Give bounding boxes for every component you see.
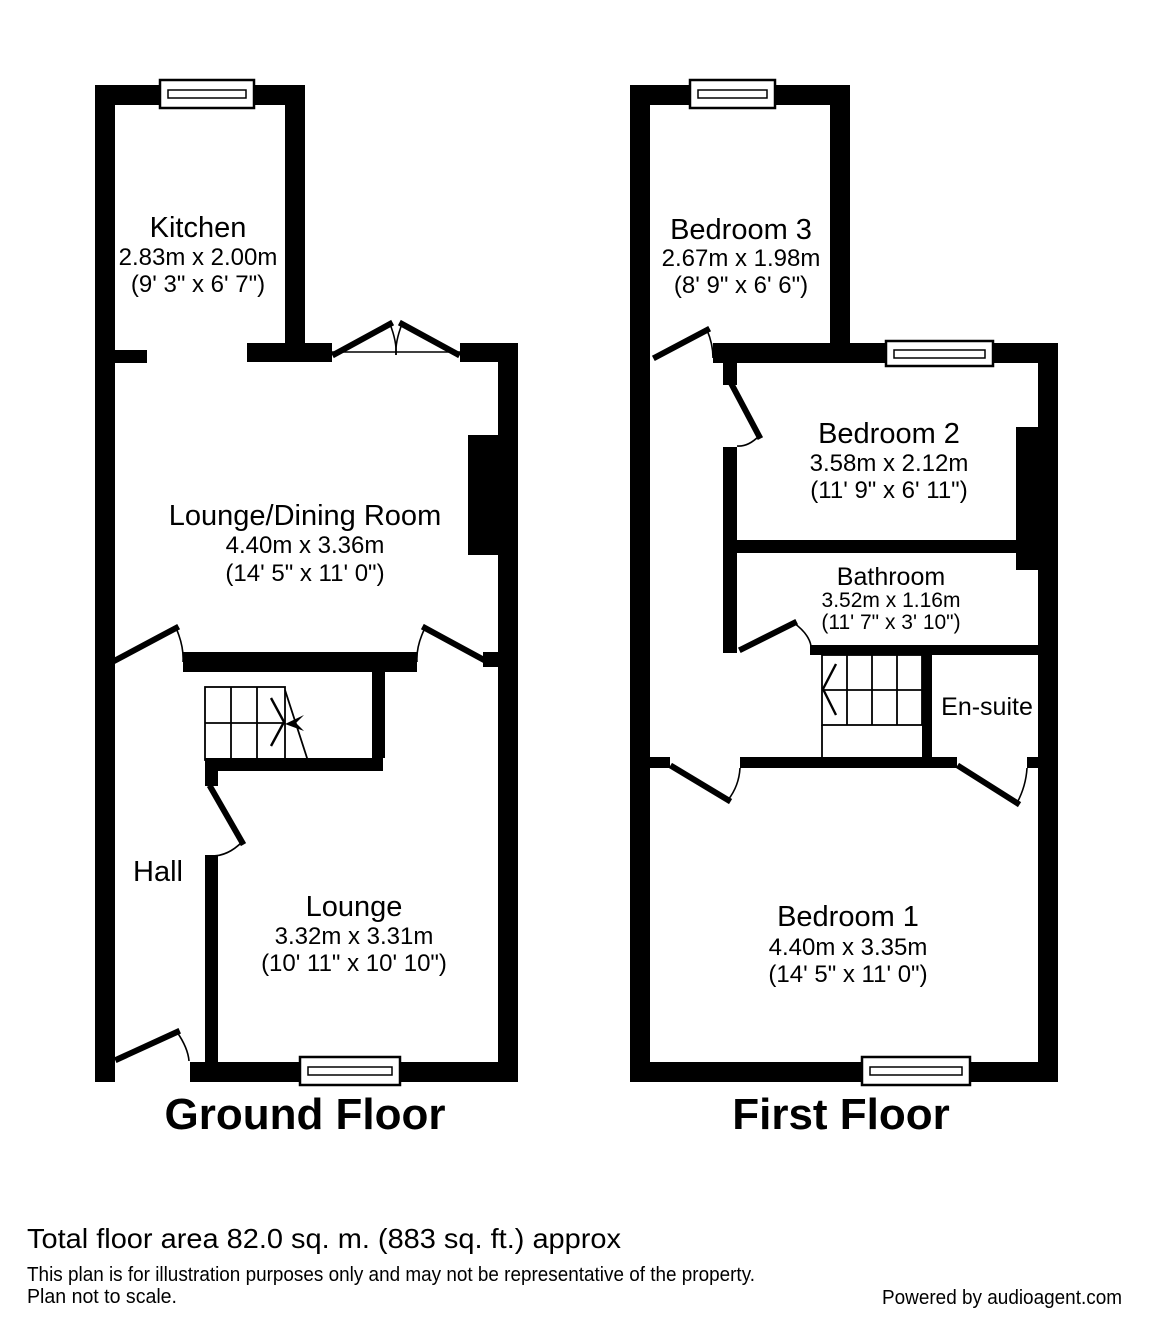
kitchen-dim-metric: 2.83m x 2.00m — [119, 244, 278, 271]
door-arc — [177, 1032, 189, 1061]
bedroom3-dim-imperial: (8' 9" x 6' 6") — [674, 272, 808, 299]
bathroom-door — [742, 623, 811, 649]
door-arc — [737, 436, 759, 446]
kitchen-dim-imperial: (9' 3" x 6' 7") — [131, 271, 265, 298]
door-leaf — [335, 324, 390, 354]
window-frame — [690, 80, 775, 108]
bedroom2-label: Bedroom 2 — [818, 418, 960, 450]
footer: Total floor area 82.0 sq. m. (883 sq. ft… — [27, 1223, 1122, 1309]
door-arc — [176, 628, 183, 662]
wall — [1038, 343, 1058, 1082]
bathroom-dim-metric: 3.52m x 1.16m — [822, 589, 961, 612]
wall — [105, 350, 147, 363]
lounge-dining-label: Lounge/Dining Room — [169, 500, 441, 532]
floorplan-drawing: Kitchen 2.83m x 2.00m (9' 3" x 6' 7") Lo… — [0, 0, 1151, 1328]
hall-label: Hall — [133, 856, 183, 888]
stair-direction-arrow — [823, 664, 836, 689]
wall — [810, 645, 1058, 655]
door-leaf — [960, 767, 1017, 803]
bedroom1-dim-metric: 4.40m x 3.35m — [769, 934, 928, 961]
stair-direction-arrow — [271, 698, 284, 722]
wall — [740, 757, 957, 768]
window-frame — [160, 80, 254, 108]
door-arc — [794, 623, 811, 646]
powered-by: Powered by audioagent.com — [882, 1287, 1122, 1309]
total-floor-area: Total floor area 82.0 sq. m. (883 sq. ft… — [27, 1223, 621, 1254]
stair-direction-arrow — [271, 722, 284, 746]
kitchen-window — [160, 80, 254, 108]
floorplan-page: Kitchen 2.83m x 2.00m (9' 3" x 6' 7") Lo… — [0, 0, 1151, 1328]
door-leaf — [732, 385, 759, 436]
bedroom2-dim-imperial: (11' 9" x 6' 11") — [810, 477, 967, 504]
bedroom3-label: Bedroom 3 — [670, 214, 812, 246]
wall — [830, 85, 850, 343]
ground-floor-plan: Kitchen 2.83m x 2.00m (9' 3" x 6' 7") Lo… — [95, 80, 518, 1139]
wall — [95, 85, 115, 1082]
lounge-dim-metric: 3.32m x 3.31m — [275, 923, 434, 950]
window-frame — [862, 1057, 970, 1085]
bedroom1-dim-imperial: (14' 5" x 11' 0") — [768, 961, 927, 988]
lounge-dining-dim-imperial: (14' 5" x 11' 0") — [225, 560, 384, 587]
kitchen-label: Kitchen — [150, 212, 247, 244]
wall — [205, 771, 218, 786]
bedroom3-door — [656, 330, 713, 358]
bedroom1-window — [862, 1057, 970, 1085]
ground-floor-title: Ground Floor — [164, 1090, 445, 1139]
wall — [1027, 757, 1058, 768]
stair-direction-arrow — [823, 689, 836, 715]
bedroom3-dim-metric: 2.67m x 1.98m — [662, 245, 821, 272]
bedroom2-window — [886, 341, 993, 366]
chimney-breast — [468, 435, 500, 555]
french-doors — [332, 324, 460, 355]
wall — [285, 85, 305, 362]
wall — [247, 343, 332, 362]
wall — [922, 653, 932, 757]
bedroom1-door — [673, 767, 740, 800]
door-arc — [212, 842, 242, 856]
door-leaf — [116, 628, 176, 660]
wall — [183, 652, 417, 672]
door-arc — [417, 628, 425, 662]
bedroom2-door — [732, 385, 759, 446]
wall — [723, 540, 1038, 553]
door-leaf — [402, 324, 457, 354]
door-leaf — [673, 767, 728, 800]
window-frame — [300, 1057, 400, 1085]
lounge-dim-imperial: (10' 11" x 10' 10") — [261, 950, 447, 977]
bedroom2-dim-metric: 3.58m x 2.12m — [810, 450, 969, 477]
lounge-window — [300, 1057, 400, 1085]
bathroom-label: Bathroom — [837, 563, 945, 591]
window-frame — [886, 341, 993, 366]
wall — [650, 757, 670, 768]
first-floor-plan: Bedroom 3 2.67m x 1.98m (8' 9" x 6' 6") … — [630, 80, 1058, 1139]
door-arc — [707, 330, 713, 358]
wall — [630, 1062, 1058, 1082]
bedroom1-label: Bedroom 1 — [777, 901, 919, 933]
door-leaf — [742, 623, 794, 649]
first-floor-title: First Floor — [732, 1090, 950, 1139]
ensuite-label: En-suite — [941, 693, 1033, 721]
door-leaf — [118, 1032, 177, 1059]
door-arc — [728, 768, 740, 800]
wall — [498, 343, 518, 1082]
door-leaf — [425, 628, 484, 660]
wall — [723, 363, 737, 385]
stairs-ground — [205, 687, 308, 761]
lounge-dining-door-left — [116, 628, 183, 662]
door-leaf — [211, 788, 242, 842]
ensuite-door — [960, 767, 1027, 803]
wall — [630, 85, 650, 1082]
bathroom-dim-imperial: (11' 7" x 3' 10") — [821, 611, 960, 634]
stairs-first — [822, 655, 922, 757]
door-arc — [1017, 768, 1027, 803]
door-leaf — [656, 330, 707, 357]
lounge-label: Lounge — [306, 891, 403, 923]
front-door — [118, 1032, 189, 1061]
wall — [205, 855, 218, 1062]
disclaimer-line1: This plan is for illustration purposes o… — [27, 1264, 755, 1286]
lounge-dining-door-right — [417, 628, 484, 662]
wall — [372, 672, 385, 758]
hall-lounge-door — [211, 788, 242, 856]
lounge-dining-dim-metric: 4.40m x 3.36m — [226, 532, 385, 559]
disclaimer-line2: Plan not to scale. — [27, 1286, 177, 1308]
bedroom3-window — [690, 80, 775, 108]
